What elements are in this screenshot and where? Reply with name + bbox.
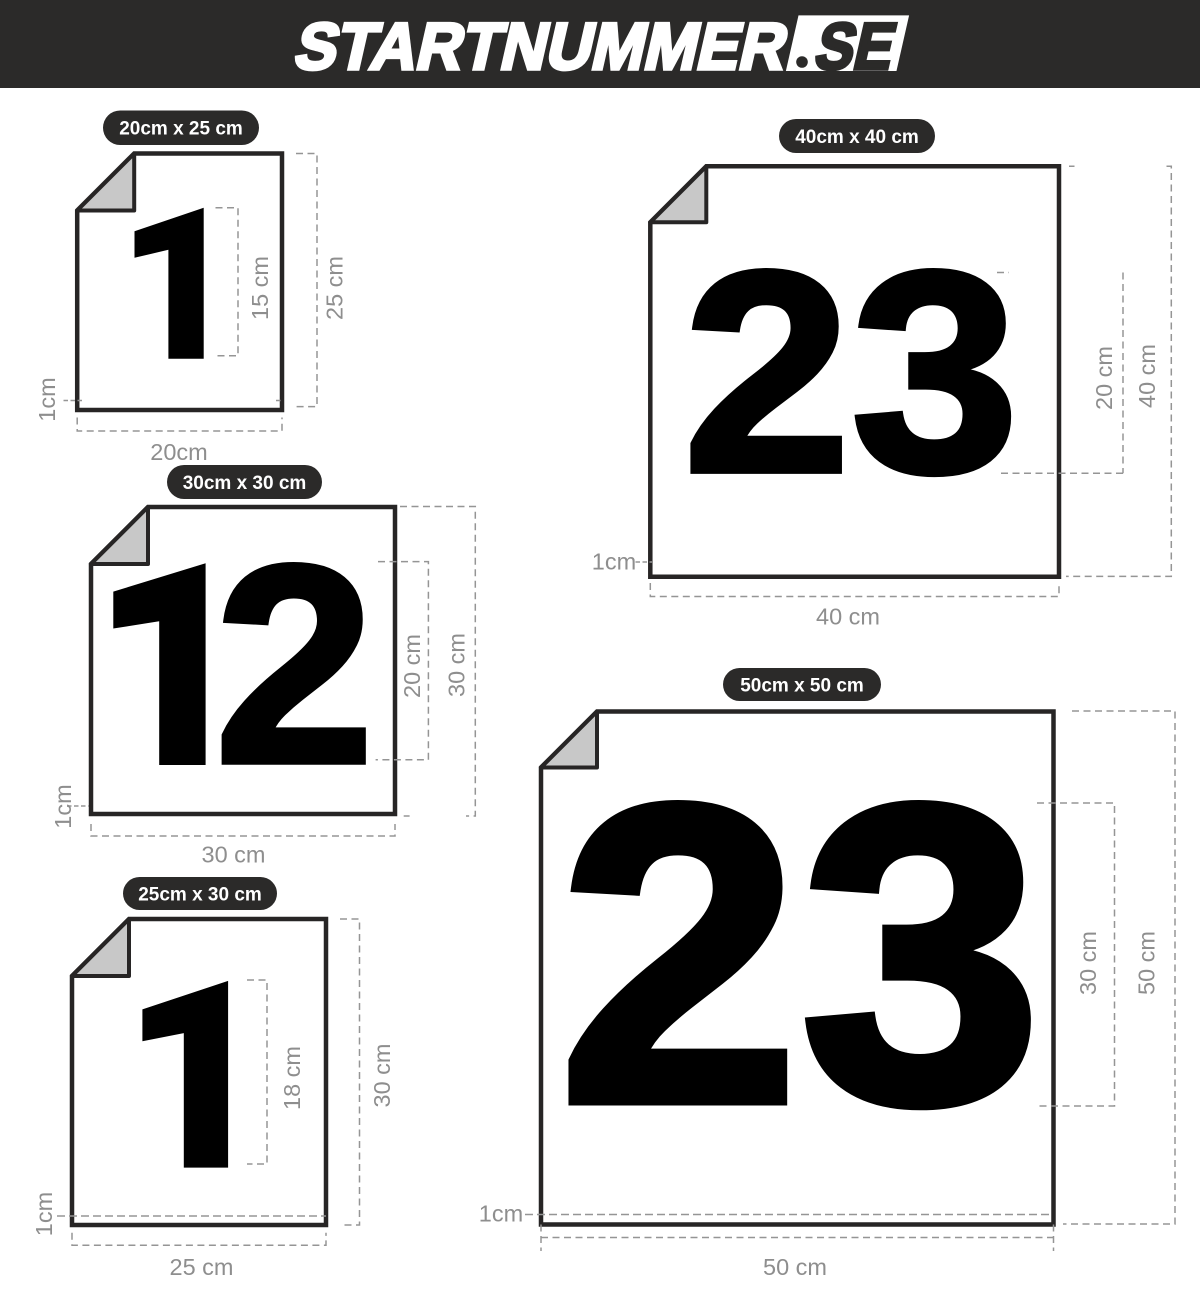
svg-text:50cm x 50 cm: 50cm x 50 cm: [740, 675, 864, 696]
svg-text:30 cm: 30 cm: [369, 1044, 395, 1108]
svg-text:40 cm: 40 cm: [1134, 344, 1160, 408]
svg-text:1cm: 1cm: [479, 1201, 523, 1227]
svg-text:20cm x 25 cm: 20cm x 25 cm: [119, 119, 243, 140]
svg-text:40cm x 40 cm: 40cm x 40 cm: [795, 127, 919, 148]
svg-text:STARTNUMMER: STARTNUMMER: [289, 10, 796, 84]
svg-text:25 cm: 25 cm: [170, 1254, 234, 1280]
svg-text:1cm: 1cm: [50, 784, 76, 828]
svg-text:1cm: 1cm: [34, 377, 60, 421]
svg-text:2: 2: [215, 506, 375, 822]
svg-text:40 cm: 40 cm: [816, 604, 880, 630]
svg-text:1cm: 1cm: [592, 549, 636, 575]
svg-text:23: 23: [683, 212, 1019, 532]
svg-text:30 cm: 30 cm: [1075, 931, 1101, 995]
svg-text:18 cm: 18 cm: [279, 1046, 305, 1110]
svg-text:50 cm: 50 cm: [763, 1254, 827, 1280]
svg-text:30cm x 30 cm: 30cm x 30 cm: [183, 473, 307, 494]
svg-text:20cm: 20cm: [150, 439, 207, 465]
svg-text:30 cm: 30 cm: [443, 633, 469, 697]
svg-text:30 cm: 30 cm: [202, 842, 266, 868]
svg-text:20 cm: 20 cm: [399, 634, 425, 698]
svg-text:20 cm: 20 cm: [1091, 346, 1117, 410]
svg-text:1cm: 1cm: [31, 1192, 57, 1236]
svg-text:25cm x 30 cm: 25cm x 30 cm: [138, 884, 262, 905]
svg-text:25 cm: 25 cm: [322, 256, 348, 320]
svg-text:15 cm: 15 cm: [247, 256, 273, 320]
svg-text:23: 23: [558, 717, 1042, 1191]
svg-text:50 cm: 50 cm: [1133, 931, 1159, 995]
